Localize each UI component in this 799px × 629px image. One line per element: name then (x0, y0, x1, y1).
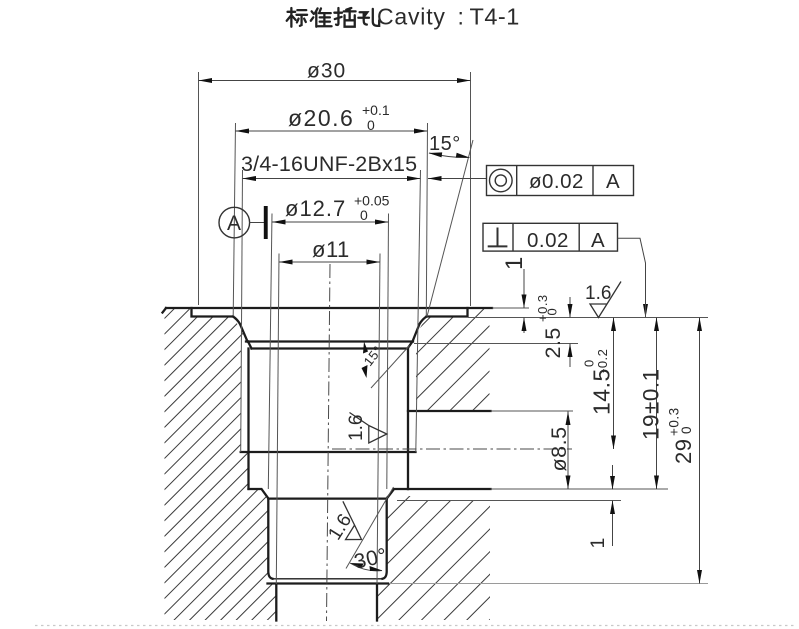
svg-text:14.5: 14.5 (589, 368, 615, 415)
svg-text:A: A (606, 170, 620, 193)
svg-text:ø8.5: ø8.5 (547, 426, 571, 471)
svg-text:0: 0 (360, 207, 368, 223)
svg-text:+0.1: +0.1 (362, 102, 390, 118)
svg-text:19±0.1: 19±0.1 (639, 368, 664, 440)
svg-text:15°: 15° (429, 133, 461, 155)
svg-text:0: 0 (545, 308, 560, 316)
svg-text:1.6: 1.6 (585, 283, 611, 304)
svg-text:3/4-16UNF-2Bx15: 3/4-16UNF-2Bx15 (241, 152, 417, 176)
svg-text:T4-1: T4-1 (470, 4, 520, 30)
svg-text:ø12.7: ø12.7 (285, 196, 346, 221)
svg-text:0: 0 (367, 117, 375, 133)
svg-text:2.5: 2.5 (541, 327, 565, 358)
svg-text::: : (458, 4, 464, 30)
svg-text:1: 1 (501, 256, 528, 270)
svg-text:A: A (591, 229, 605, 252)
svg-text:ø30: ø30 (307, 60, 346, 83)
svg-text:ø0.02: ø0.02 (529, 170, 584, 193)
svg-text:0: 0 (679, 426, 694, 434)
svg-text:ø11: ø11 (312, 237, 350, 262)
svg-text:1.6: 1.6 (346, 415, 367, 441)
svg-text:29: 29 (671, 439, 696, 464)
svg-text:A: A (227, 212, 241, 235)
svg-text:Cavity: Cavity (377, 4, 446, 30)
svg-text:-0.2: -0.2 (595, 349, 610, 373)
svg-text:0.02: 0.02 (527, 229, 569, 252)
svg-text:ø20.6: ø20.6 (288, 105, 354, 131)
svg-text:1: 1 (587, 537, 609, 548)
